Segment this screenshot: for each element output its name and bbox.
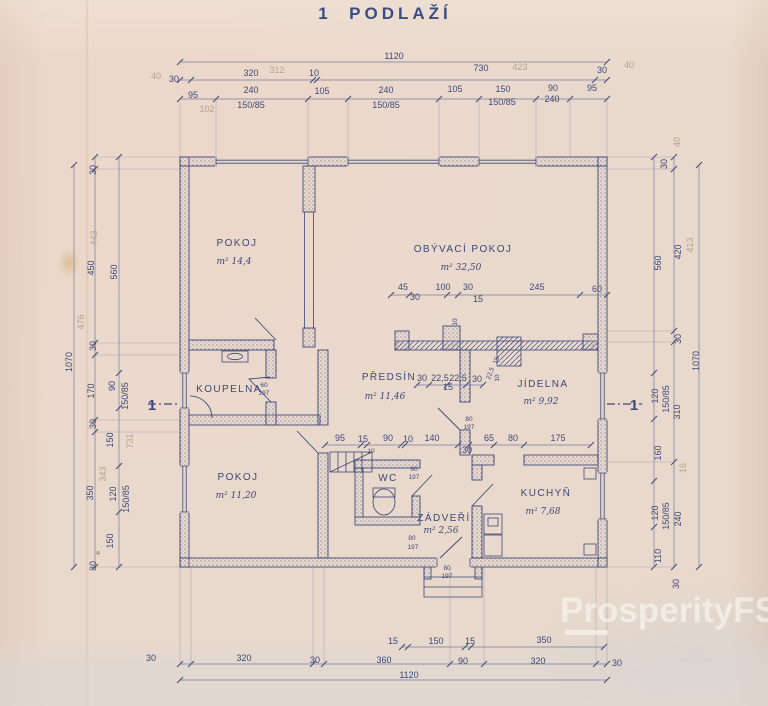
kitchen-stove	[484, 535, 502, 556]
wall-zadveri-kuchyn-b	[472, 506, 482, 558]
dim-label: 30	[462, 445, 472, 455]
door-entry	[440, 537, 462, 558]
dim-label: 1070	[691, 351, 701, 371]
dim-label: 423	[512, 62, 527, 72]
wall-bottom	[180, 558, 607, 567]
pier	[583, 334, 598, 350]
dim-label: 105	[447, 84, 462, 94]
dim-label: 30	[310, 655, 320, 665]
dim-label: 160	[653, 445, 663, 460]
dim-label: 560	[653, 255, 663, 270]
dim-label: 30	[410, 292, 420, 302]
dim-label: 350	[536, 635, 551, 645]
dim-label: 240	[544, 94, 559, 104]
washbasin-bowl	[228, 353, 243, 359]
dim-label: 420	[673, 244, 683, 259]
wall-center-a	[318, 350, 328, 425]
room-area-label: m² 32,50	[441, 263, 482, 273]
dim-label: 560	[109, 264, 119, 279]
wall-kuchyn-north-a	[472, 455, 494, 465]
watermark-underline	[565, 630, 608, 635]
dim-label: 90	[383, 433, 393, 443]
dim-label: 360	[376, 655, 391, 665]
room-label: WC	[378, 473, 397, 484]
dim-label: 343	[98, 466, 108, 481]
dim-label: 10	[367, 448, 375, 455]
dim-label: 30	[673, 334, 683, 344]
room-area-label: m² 7,68	[525, 507, 560, 517]
dim-label: 240	[243, 85, 258, 95]
dim-label: 30	[88, 561, 98, 571]
wall-koupelna-east-a	[266, 350, 276, 378]
dim-label: 443	[89, 230, 99, 245]
wall-center-b	[318, 453, 328, 558]
dim-label: 95	[335, 433, 345, 443]
blueprint-page: 1 PODLAŽÍ	[0, 0, 768, 706]
kitchen-unit	[484, 514, 502, 534]
wall-pokoj-living-bottom	[303, 328, 315, 347]
dim-label: 150	[105, 533, 115, 548]
wall-wc-south	[355, 517, 420, 525]
dim-label: 413	[685, 237, 695, 252]
dim-label: 730	[473, 63, 488, 73]
dim-label: 65	[484, 433, 494, 443]
dim-label: 150	[428, 636, 443, 646]
door-pokoj2	[297, 431, 318, 453]
door-jidelna	[438, 408, 460, 430]
kitchen-pier	[584, 544, 596, 555]
dim-label: 30	[146, 653, 156, 663]
dim-label: 150/85	[372, 100, 400, 110]
dim-label: 90	[107, 381, 117, 391]
washbasin	[222, 351, 248, 362]
kitchen-pier	[584, 468, 596, 479]
dim-label: 90	[548, 83, 558, 93]
wall-wc-west	[355, 468, 363, 517]
dim-label: 15	[473, 294, 483, 304]
dim-label: 150	[495, 84, 510, 94]
pier	[395, 331, 409, 350]
dim-label: 240	[673, 511, 683, 526]
dim-label: 30	[88, 419, 98, 429]
room-label: JÍDELNA	[518, 377, 569, 390]
dim-label: 100	[435, 282, 450, 292]
dim-label: 312	[269, 65, 284, 75]
door-pokoj1	[255, 318, 276, 340]
room-area-label: m² 2,56	[423, 526, 458, 536]
chimney	[497, 337, 521, 366]
dim-label: 310	[672, 404, 682, 419]
dim-label: 95	[587, 83, 597, 93]
room-label: POKOJ	[218, 472, 259, 483]
dim-label: 15	[465, 636, 475, 646]
wall-koupelna-south	[189, 415, 320, 425]
dim-label: 197	[408, 544, 419, 551]
dim-label: 120	[650, 388, 660, 403]
dim-label: 150/85	[237, 100, 265, 110]
dim-label: 1070	[64, 352, 74, 372]
dim-label: 30	[671, 579, 681, 589]
dim-label: 245	[529, 282, 544, 292]
wall-pokoj-living-top	[303, 166, 315, 212]
dim-label: 150/85	[121, 485, 131, 513]
toilet-bowl	[373, 489, 395, 515]
window-gap	[478, 156, 537, 167]
dim-label: 40	[624, 60, 634, 70]
wall-pokoj-living-thin	[305, 212, 314, 328]
dim-label: 30	[88, 165, 98, 175]
dim-label: 10	[452, 318, 459, 326]
pier	[443, 326, 460, 350]
dim-label: 60	[410, 466, 418, 473]
dim-label: 150/85	[488, 97, 516, 107]
dim-label: 16	[678, 463, 688, 473]
window-gap	[597, 372, 608, 420]
dim-label: 240	[378, 85, 393, 95]
dim-label: 30	[597, 65, 607, 75]
window-gap	[179, 372, 190, 409]
room-label: KUCHYŇ	[521, 486, 572, 499]
dim-label: 170	[86, 383, 96, 398]
dim-label: 320	[243, 68, 258, 78]
room-label: POKOJ	[217, 238, 258, 249]
watermark-logo: ProsperityFS	[560, 591, 768, 631]
dim-label: 150/85	[120, 382, 130, 410]
dim-label: 1120	[384, 51, 403, 61]
dim-label: 350	[85, 485, 95, 500]
dim-label: 102	[199, 104, 214, 114]
dim-label: 476	[76, 314, 86, 329]
wall-living-south-strip	[395, 341, 598, 350]
room-area-label: m² 9,92	[523, 397, 558, 407]
dim-label: 30	[169, 74, 179, 84]
dim-label: 320	[236, 653, 251, 663]
dim-label: 10	[494, 374, 501, 382]
room-label: PŘEDSÍN	[362, 370, 416, 383]
wall-pokoj1-south	[189, 340, 274, 350]
entry-porch-steps	[424, 567, 482, 597]
dim-label: 10	[403, 434, 413, 444]
dim-label: 60	[592, 284, 602, 294]
dim-label: 15	[358, 434, 368, 444]
window-gap	[597, 472, 608, 520]
dim-label: 175	[550, 433, 565, 443]
dim-label: 30	[612, 658, 622, 668]
dim-label: 105	[314, 86, 329, 96]
dim-label: 150/85	[661, 502, 671, 530]
dim-label: 90	[458, 656, 468, 666]
dim-label: 197	[442, 573, 453, 580]
window-gap	[347, 156, 440, 167]
dim-label: 1120	[399, 670, 418, 680]
wall-kuchyn-north-b	[524, 455, 598, 465]
room-area-label: m² 11,46	[365, 392, 406, 402]
dim-label: 197	[409, 474, 420, 481]
dim-label: 45	[398, 282, 408, 292]
section-mark: 1	[630, 397, 638, 414]
dim-label: 120	[108, 486, 118, 501]
kitchen-sink	[488, 518, 498, 526]
dim-label: 120	[650, 505, 660, 520]
dim-label: 450	[86, 260, 96, 275]
dim-label: 80	[443, 565, 451, 572]
watermark-text: ProsperityFS	[560, 591, 768, 630]
dim-label: 40	[672, 137, 682, 147]
dim-label: 95	[188, 90, 198, 100]
dim-label: 30	[659, 159, 669, 169]
dim-label: 10	[309, 68, 319, 78]
room-label: OBÝVACÍ POKOJ	[414, 242, 513, 255]
dim-label: 140	[424, 433, 439, 443]
dim-label: 320	[530, 656, 545, 666]
room-area-label: m² 11,20	[216, 491, 257, 501]
entry-door-gap	[436, 557, 471, 568]
dim-label: 731	[125, 433, 135, 448]
dim-label: 30	[417, 373, 427, 383]
dim-label: 150	[105, 432, 115, 447]
dim-label: 15	[443, 382, 453, 392]
dim-label: 15	[388, 636, 398, 646]
dim-label: 30	[472, 374, 482, 384]
dim-label: 150/85	[661, 385, 671, 413]
room-area-label: m² 14,4	[216, 257, 251, 267]
wall-zadveri-kuchyn-a	[472, 465, 482, 480]
dim-label: 30	[88, 341, 98, 351]
dim-label: 30	[463, 282, 473, 292]
door-kuchyn	[472, 484, 493, 506]
dim-label: 40	[151, 71, 161, 81]
wall-koupelna-east-b	[266, 402, 276, 425]
section-mark: 1	[148, 397, 156, 414]
room-label: ZÁDVEŘÍ	[417, 511, 470, 524]
dim-label: 197	[464, 424, 475, 431]
window-gap	[215, 156, 309, 167]
dim-label: 80	[465, 416, 473, 423]
dim-label: 80	[508, 433, 518, 443]
window-gap	[179, 465, 190, 513]
dim-label: 80	[408, 535, 416, 542]
dim-label: 110	[653, 549, 663, 563]
room-label: KOUPELNA	[196, 384, 262, 395]
